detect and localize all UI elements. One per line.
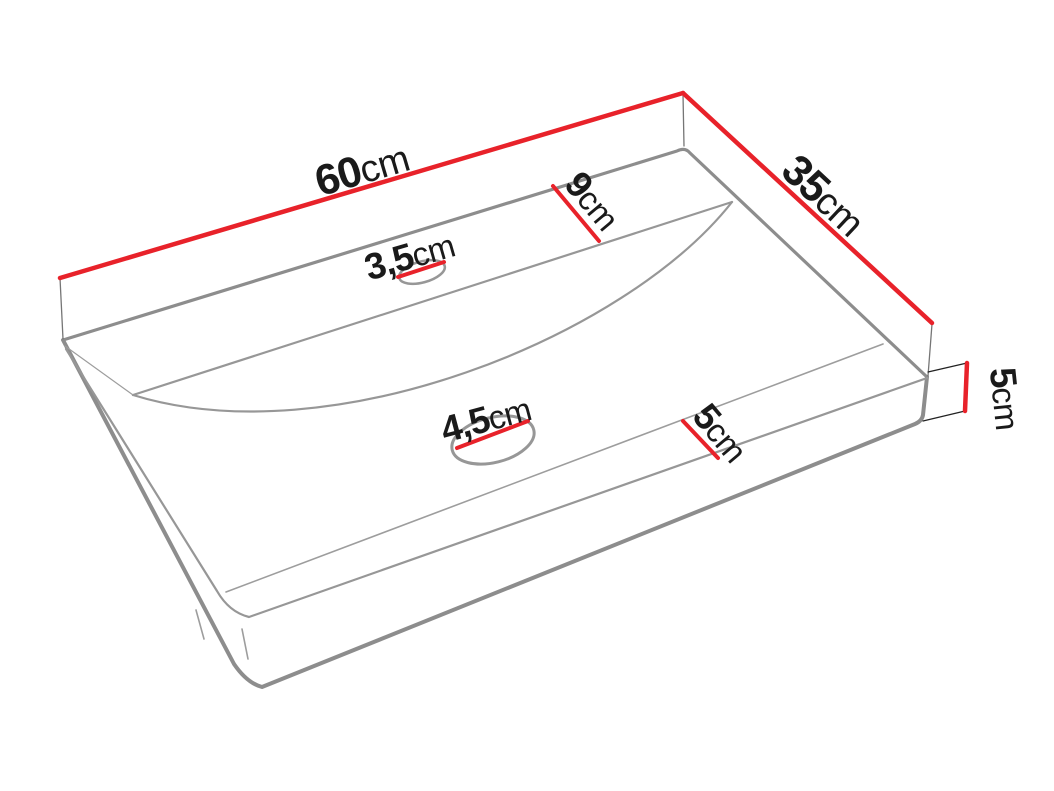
washbasin-isometric-drawing: 60cm 35cm 9cm 3,5cm 4,5cm 5cm 5cm bbox=[0, 0, 1054, 791]
bowl-front-rim-line bbox=[226, 344, 883, 592]
height-extension-line-bottom bbox=[923, 411, 965, 421]
washbasin-dimension-diagram: 60cm 35cm 9cm 3,5cm 4,5cm 5cm 5cm bbox=[0, 0, 1054, 791]
height-extension-line-top bbox=[928, 363, 967, 372]
back-right-corner-cap bbox=[683, 94, 684, 146]
front-left-corner-facet-inner bbox=[242, 629, 248, 659]
extension-lines-group bbox=[923, 363, 967, 421]
side-height-dimension-line bbox=[965, 363, 967, 411]
depth-dimension-label: 35cm bbox=[772, 146, 875, 246]
back-left-corner-cap bbox=[60, 278, 63, 339]
front-right-corner-cap bbox=[928, 324, 932, 376]
basin-outer-edge bbox=[63, 340, 927, 687]
width-dimension-label: 60cm bbox=[309, 133, 414, 206]
front-left-corner-facet-outer bbox=[196, 610, 204, 639]
side-height-dimension-label: 5cm bbox=[982, 365, 1029, 432]
basin-left-and-front-top-edge bbox=[66, 349, 927, 617]
back-shelf-dimension-label: 9cm bbox=[557, 164, 629, 238]
bowl-left-edge bbox=[65, 346, 133, 395]
